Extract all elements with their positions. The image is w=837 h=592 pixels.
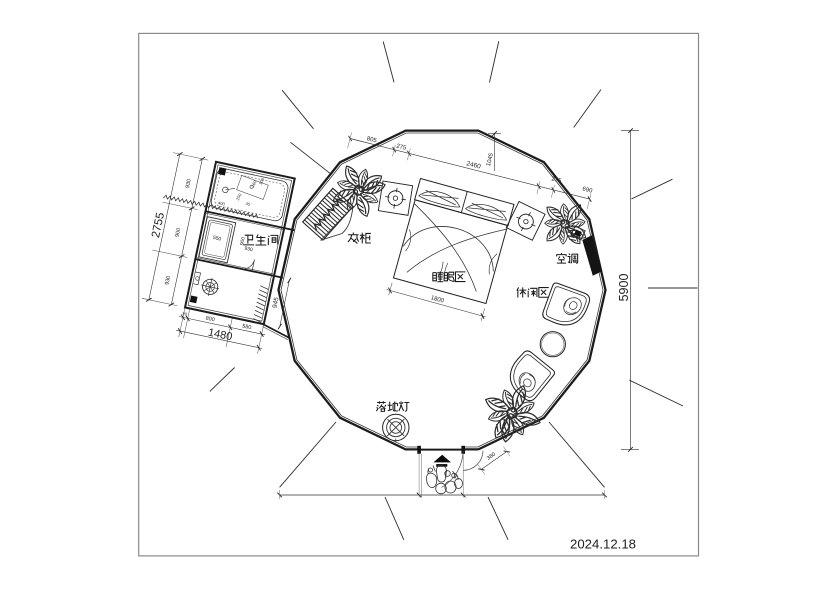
svg-text:2755: 2755 bbox=[150, 211, 167, 239]
svg-text:1045: 1045 bbox=[486, 152, 495, 167]
svg-text:690: 690 bbox=[582, 186, 594, 194]
svg-text:2460: 2460 bbox=[466, 160, 482, 170]
svg-text:930: 930 bbox=[244, 246, 254, 254]
svg-text:900: 900 bbox=[175, 227, 183, 237]
svg-text:45: 45 bbox=[245, 201, 251, 207]
svg-text:550: 550 bbox=[212, 235, 222, 243]
svg-text:250: 250 bbox=[235, 192, 243, 201]
svg-text:100: 100 bbox=[258, 176, 266, 185]
svg-text:380: 380 bbox=[486, 452, 497, 462]
svg-text:2024.12.18: 2024.12.18 bbox=[570, 537, 636, 552]
svg-text:930: 930 bbox=[164, 275, 172, 285]
svg-text:930: 930 bbox=[185, 179, 193, 189]
svg-text:400: 400 bbox=[218, 200, 227, 206]
svg-text:1480: 1480 bbox=[207, 327, 233, 344]
svg-text:5900: 5900 bbox=[617, 274, 631, 302]
svg-text:945: 945 bbox=[272, 296, 281, 308]
svg-text:90: 90 bbox=[182, 311, 188, 317]
